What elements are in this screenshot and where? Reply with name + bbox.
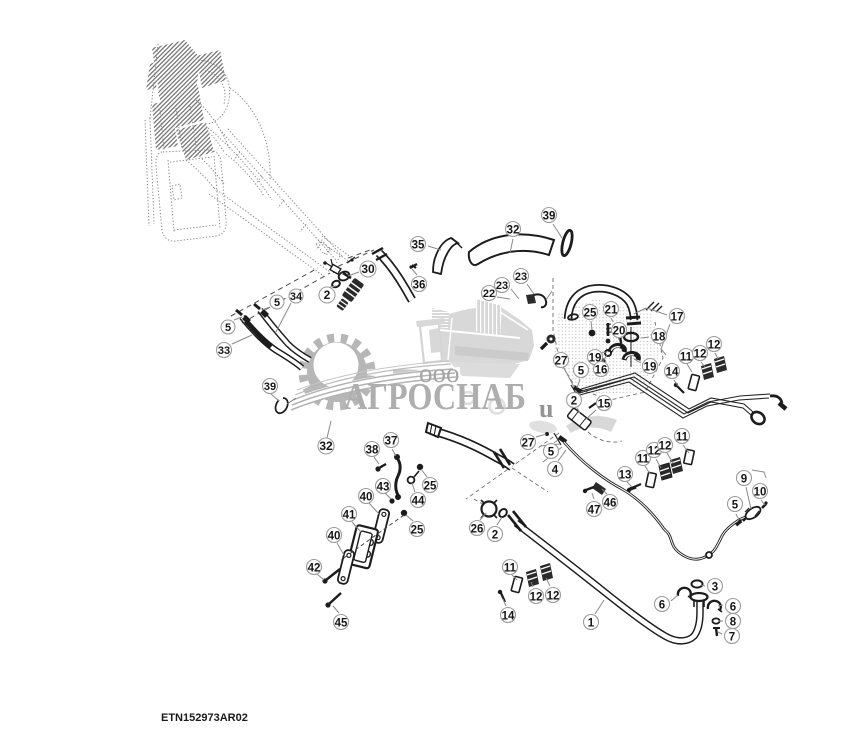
svg-text:17: 17	[671, 312, 684, 324]
svg-text:18: 18	[653, 332, 666, 344]
svg-text:44: 44	[412, 496, 425, 508]
svg-text:12: 12	[659, 441, 672, 453]
svg-text:21: 21	[605, 305, 618, 317]
svg-text:26: 26	[471, 524, 484, 536]
svg-text:40: 40	[328, 531, 341, 543]
svg-text:33: 33	[218, 345, 230, 357]
svg-text:41: 41	[343, 510, 356, 522]
svg-text:5: 5	[732, 500, 739, 512]
svg-text:2: 2	[324, 288, 331, 302]
svg-text:39: 39	[543, 211, 556, 223]
svg-text:25: 25	[411, 525, 424, 537]
svg-text:3: 3	[712, 582, 718, 594]
svg-text:45: 45	[335, 618, 348, 630]
svg-text:14: 14	[666, 367, 679, 379]
svg-text:5: 5	[578, 366, 585, 378]
svg-text:32: 32	[507, 225, 520, 237]
svg-text:23: 23	[496, 280, 508, 292]
svg-text:20: 20	[613, 326, 626, 338]
svg-text:32: 32	[319, 439, 333, 453]
svg-text:10: 10	[754, 487, 767, 499]
svg-text:1: 1	[588, 618, 595, 630]
svg-text:АГРОСНАБ: АГРОСНАБ	[344, 376, 526, 418]
svg-text:13: 13	[619, 470, 632, 482]
svg-text:8: 8	[730, 617, 737, 629]
svg-text:35: 35	[412, 240, 425, 252]
svg-text:40: 40	[360, 492, 373, 504]
svg-text:16: 16	[595, 365, 608, 377]
svg-text:2: 2	[571, 396, 577, 408]
svg-text:5: 5	[225, 322, 231, 334]
svg-text:11: 11	[680, 352, 693, 364]
svg-text:12: 12	[547, 591, 560, 603]
svg-text:14: 14	[502, 611, 515, 623]
svg-text:12: 12	[708, 340, 721, 352]
svg-text:7: 7	[729, 632, 735, 644]
svg-text:25: 25	[424, 481, 437, 493]
svg-text:42: 42	[308, 563, 321, 575]
svg-text:ETN152973AR02: ETN152973AR02	[161, 712, 248, 724]
svg-text:27: 27	[522, 438, 535, 450]
svg-text:22: 22	[483, 288, 495, 300]
svg-text:9: 9	[741, 474, 747, 486]
svg-text:2: 2	[492, 530, 498, 542]
svg-text:23: 23	[515, 271, 527, 283]
svg-text:39: 39	[264, 381, 276, 393]
svg-text:15: 15	[598, 399, 611, 411]
svg-text:11: 11	[504, 563, 517, 575]
svg-text:12: 12	[694, 349, 707, 361]
svg-text:38: 38	[366, 445, 379, 457]
svg-text:6: 6	[659, 600, 665, 612]
svg-text:27: 27	[555, 356, 568, 368]
svg-text:5: 5	[548, 447, 555, 459]
svg-text:25: 25	[584, 308, 597, 320]
svg-text:34: 34	[290, 291, 303, 303]
svg-text:12: 12	[530, 592, 543, 604]
svg-text:6: 6	[730, 602, 736, 614]
svg-text:37: 37	[385, 436, 398, 448]
svg-text:43: 43	[377, 482, 390, 494]
svg-text:30: 30	[361, 262, 375, 276]
svg-text:36: 36	[413, 280, 426, 292]
svg-text:19: 19	[644, 362, 657, 374]
svg-text:5: 5	[274, 297, 280, 309]
svg-text:u: u	[539, 394, 553, 423]
svg-text:47: 47	[588, 505, 601, 517]
svg-text:11: 11	[676, 432, 689, 444]
svg-text:4: 4	[552, 465, 559, 477]
svg-text:46: 46	[604, 498, 617, 510]
